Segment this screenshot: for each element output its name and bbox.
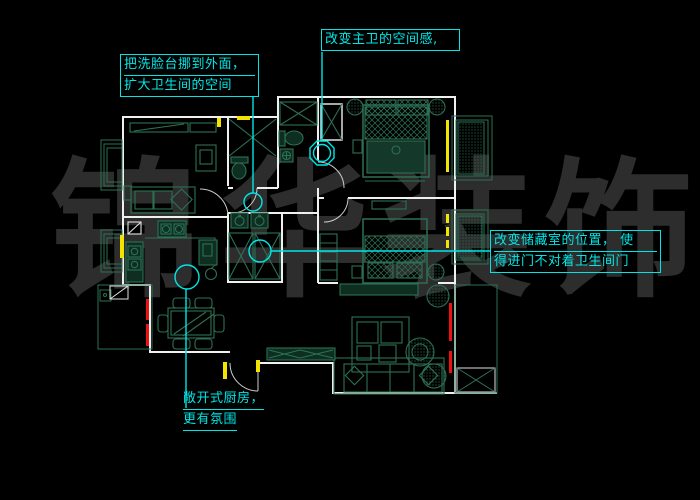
ac-platform — [98, 285, 152, 349]
annotation-line: 得进门不对着卫生间门 — [494, 252, 657, 272]
annotation-master-bath[interactable]: 改变主卫的空间感, — [321, 29, 460, 51]
balcony-bottom-right — [455, 285, 497, 393]
annotation-line: 敞开式厨房， — [183, 389, 264, 410]
leader-masterbath-circle — [314, 145, 331, 162]
furniture — [124, 99, 449, 394]
shaft-x — [321, 104, 342, 140]
annotation-line: 更有氛围 — [183, 410, 237, 431]
dining-set — [158, 298, 224, 349]
annotation-line: 改变主卫的空间感, — [325, 30, 456, 50]
annotation-line: 扩大卫生间的空间 — [124, 76, 255, 96]
annotation-line: 改变储藏室的位置， 使 — [494, 231, 657, 252]
annotation-open-kitchen[interactable]: 敞开式厨房， 更有氛围 — [183, 389, 264, 431]
annotation-move-basin[interactable]: 把洗脸台挪到外面， 扩大卫生间的空间 — [120, 54, 259, 97]
balcony-right-bedroom2 — [452, 210, 488, 264]
annotation-line: 把洗脸台挪到外面， — [124, 55, 255, 76]
master-bath-fixtures — [279, 102, 317, 162]
master-bedroom-furniture — [347, 99, 445, 181]
leader-kitchen-circle — [175, 265, 199, 289]
highlight-marks — [146, 299, 452, 373]
balcony-left-bedroom — [101, 140, 122, 190]
balcony-right-master — [452, 116, 492, 180]
storage-cabinets — [229, 233, 280, 279]
bedroom1-furniture — [124, 123, 216, 213]
entry-console — [267, 348, 335, 360]
kitchen-furniture — [126, 221, 217, 282]
washbasins — [231, 213, 268, 228]
balcony-left-kitchen — [101, 230, 122, 272]
annotation-storage[interactable]: 改变储藏室的位置， 使 得进门不对着卫生间门 — [490, 230, 661, 273]
cad-viewport[interactable]: 锦 华 装 饰 — [0, 0, 700, 500]
